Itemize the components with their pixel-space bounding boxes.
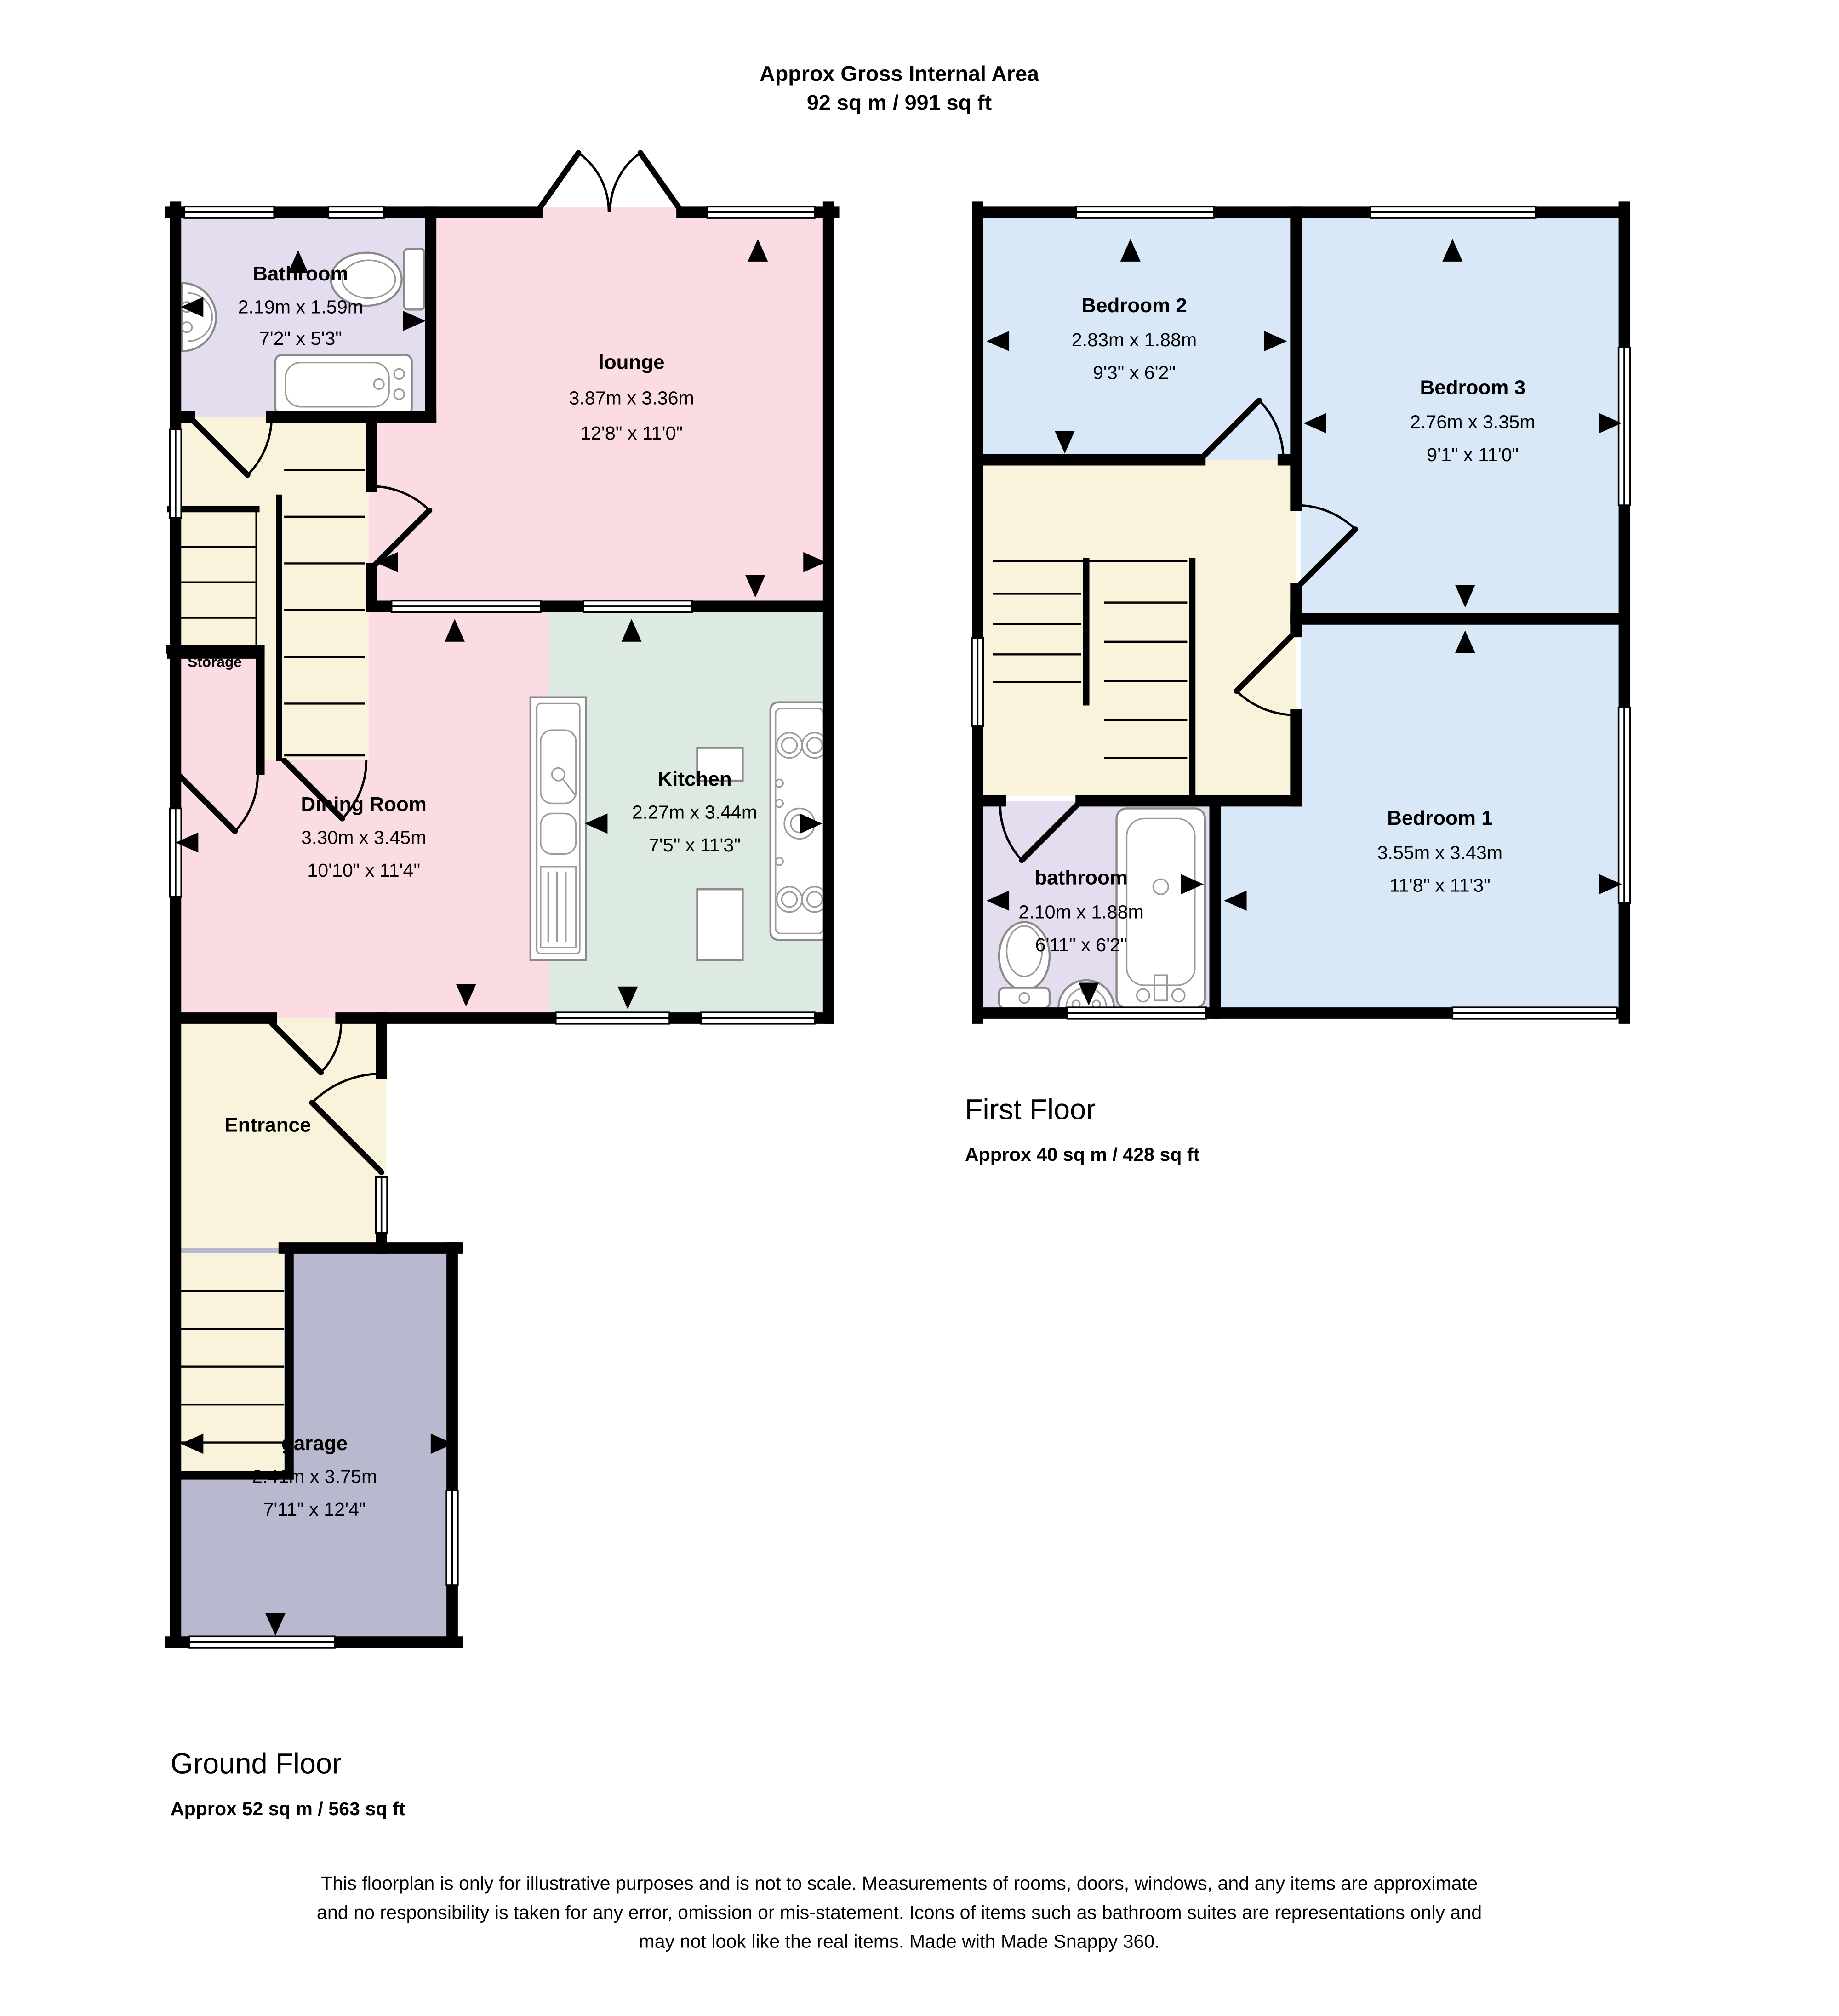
disclaimer: This floorplan is only for illustrative … bbox=[317, 1873, 1482, 1952]
lounge-name: lounge bbox=[599, 351, 665, 373]
floorplan-canvas: Approx Gross Internal Area 92 sq m / 991… bbox=[0, 0, 1839, 2016]
title-line1: Approx Gross Internal Area bbox=[760, 62, 1039, 86]
bathroom-first-metric: 2.10m x 1.88m bbox=[1018, 901, 1143, 922]
window bbox=[707, 206, 815, 218]
ground-floor-label: Ground Floor bbox=[171, 1748, 342, 1780]
window bbox=[1076, 206, 1214, 218]
bedroom3-imperial: 9'1" x 11'0" bbox=[1427, 444, 1519, 465]
bedroom1-metric: 3.55m x 3.43m bbox=[1377, 842, 1502, 863]
window bbox=[556, 1012, 669, 1024]
dining-metric: 3.30m x 3.45m bbox=[301, 827, 426, 848]
window bbox=[1067, 1007, 1206, 1019]
window bbox=[972, 638, 983, 726]
window bbox=[184, 206, 274, 218]
bedroom2-name: Bedroom 2 bbox=[1081, 294, 1187, 317]
storage-name: Storage bbox=[188, 654, 242, 670]
window bbox=[446, 1491, 458, 1585]
garage-metric: 2.41m x 3.75m bbox=[252, 1466, 377, 1487]
window bbox=[170, 808, 182, 897]
title-block: Approx Gross Internal Area 92 sq m / 991… bbox=[760, 62, 1039, 114]
room-landing bbox=[977, 460, 1296, 796]
window bbox=[392, 601, 541, 612]
kitchen-metric: 2.27m x 3.44m bbox=[632, 801, 757, 822]
bathroom-ground-name: Bathroom bbox=[253, 263, 348, 285]
window bbox=[1619, 708, 1630, 903]
ground-floor-area: Approx 52 sq m / 563 sq ft bbox=[171, 1798, 405, 1819]
door-french-lounge bbox=[537, 153, 682, 212]
bathroom-first-name: bathroom bbox=[1034, 866, 1128, 889]
window bbox=[376, 1177, 387, 1233]
kitchen-imperial: 7'5" x 11'3" bbox=[649, 834, 741, 856]
window bbox=[701, 1012, 815, 1024]
window bbox=[583, 601, 692, 612]
disclaimer-line1: This floorplan is only for illustrative … bbox=[321, 1873, 1478, 1894]
bathroom-first-imperial: 6'11" x 6'2" bbox=[1035, 934, 1127, 955]
disclaimer-line3: may not look like the real items. Made w… bbox=[639, 1930, 1159, 1952]
bathroom-ground-metric: 2.19m x 1.59m bbox=[238, 297, 363, 318]
garage-imperial: 7'11" x 12'4" bbox=[263, 1499, 366, 1520]
lounge-metric: 3.87m x 3.36m bbox=[569, 387, 694, 408]
disclaimer-line2: and no responsibility is taken for any e… bbox=[317, 1902, 1482, 1923]
bedroom3-metric: 2.76m x 3.35m bbox=[1410, 411, 1535, 433]
window bbox=[170, 429, 182, 518]
first-floor-label: First Floor bbox=[965, 1093, 1096, 1125]
bedroom3-name: Bedroom 3 bbox=[1420, 376, 1525, 399]
bedroom1-imperial: 11'8" x 11'3" bbox=[1389, 875, 1491, 896]
window bbox=[189, 1636, 335, 1648]
kitchen-name: Kitchen bbox=[657, 768, 731, 790]
dining-name: Dining Room bbox=[301, 793, 427, 816]
first-floor-area: Approx 40 sq m / 428 sq ft bbox=[965, 1144, 1200, 1165]
garage-name: garage bbox=[281, 1432, 348, 1455]
room-storage bbox=[172, 654, 258, 771]
bedroom2-metric: 2.83m x 1.88m bbox=[1072, 329, 1197, 350]
bathroom-ground-imperial: 7'2" x 5'3" bbox=[259, 328, 342, 349]
window bbox=[1371, 206, 1536, 218]
dining-imperial: 10'10" x 11'4" bbox=[307, 860, 420, 881]
window bbox=[328, 206, 384, 218]
window bbox=[1619, 348, 1630, 505]
bedroom1-name: Bedroom 1 bbox=[1387, 807, 1493, 829]
bedroom2-imperial: 9'3" x 6'2" bbox=[1093, 362, 1176, 383]
lounge-imperial: 12'8" x 11'0" bbox=[580, 423, 683, 444]
kitchen-sink-unit bbox=[531, 697, 586, 960]
title-line2: 92 sq m / 991 sq ft bbox=[807, 91, 992, 114]
window bbox=[1452, 1007, 1616, 1019]
bathroom-ground-bath-icon bbox=[275, 355, 412, 414]
entrance-name: Entrance bbox=[224, 1114, 311, 1136]
